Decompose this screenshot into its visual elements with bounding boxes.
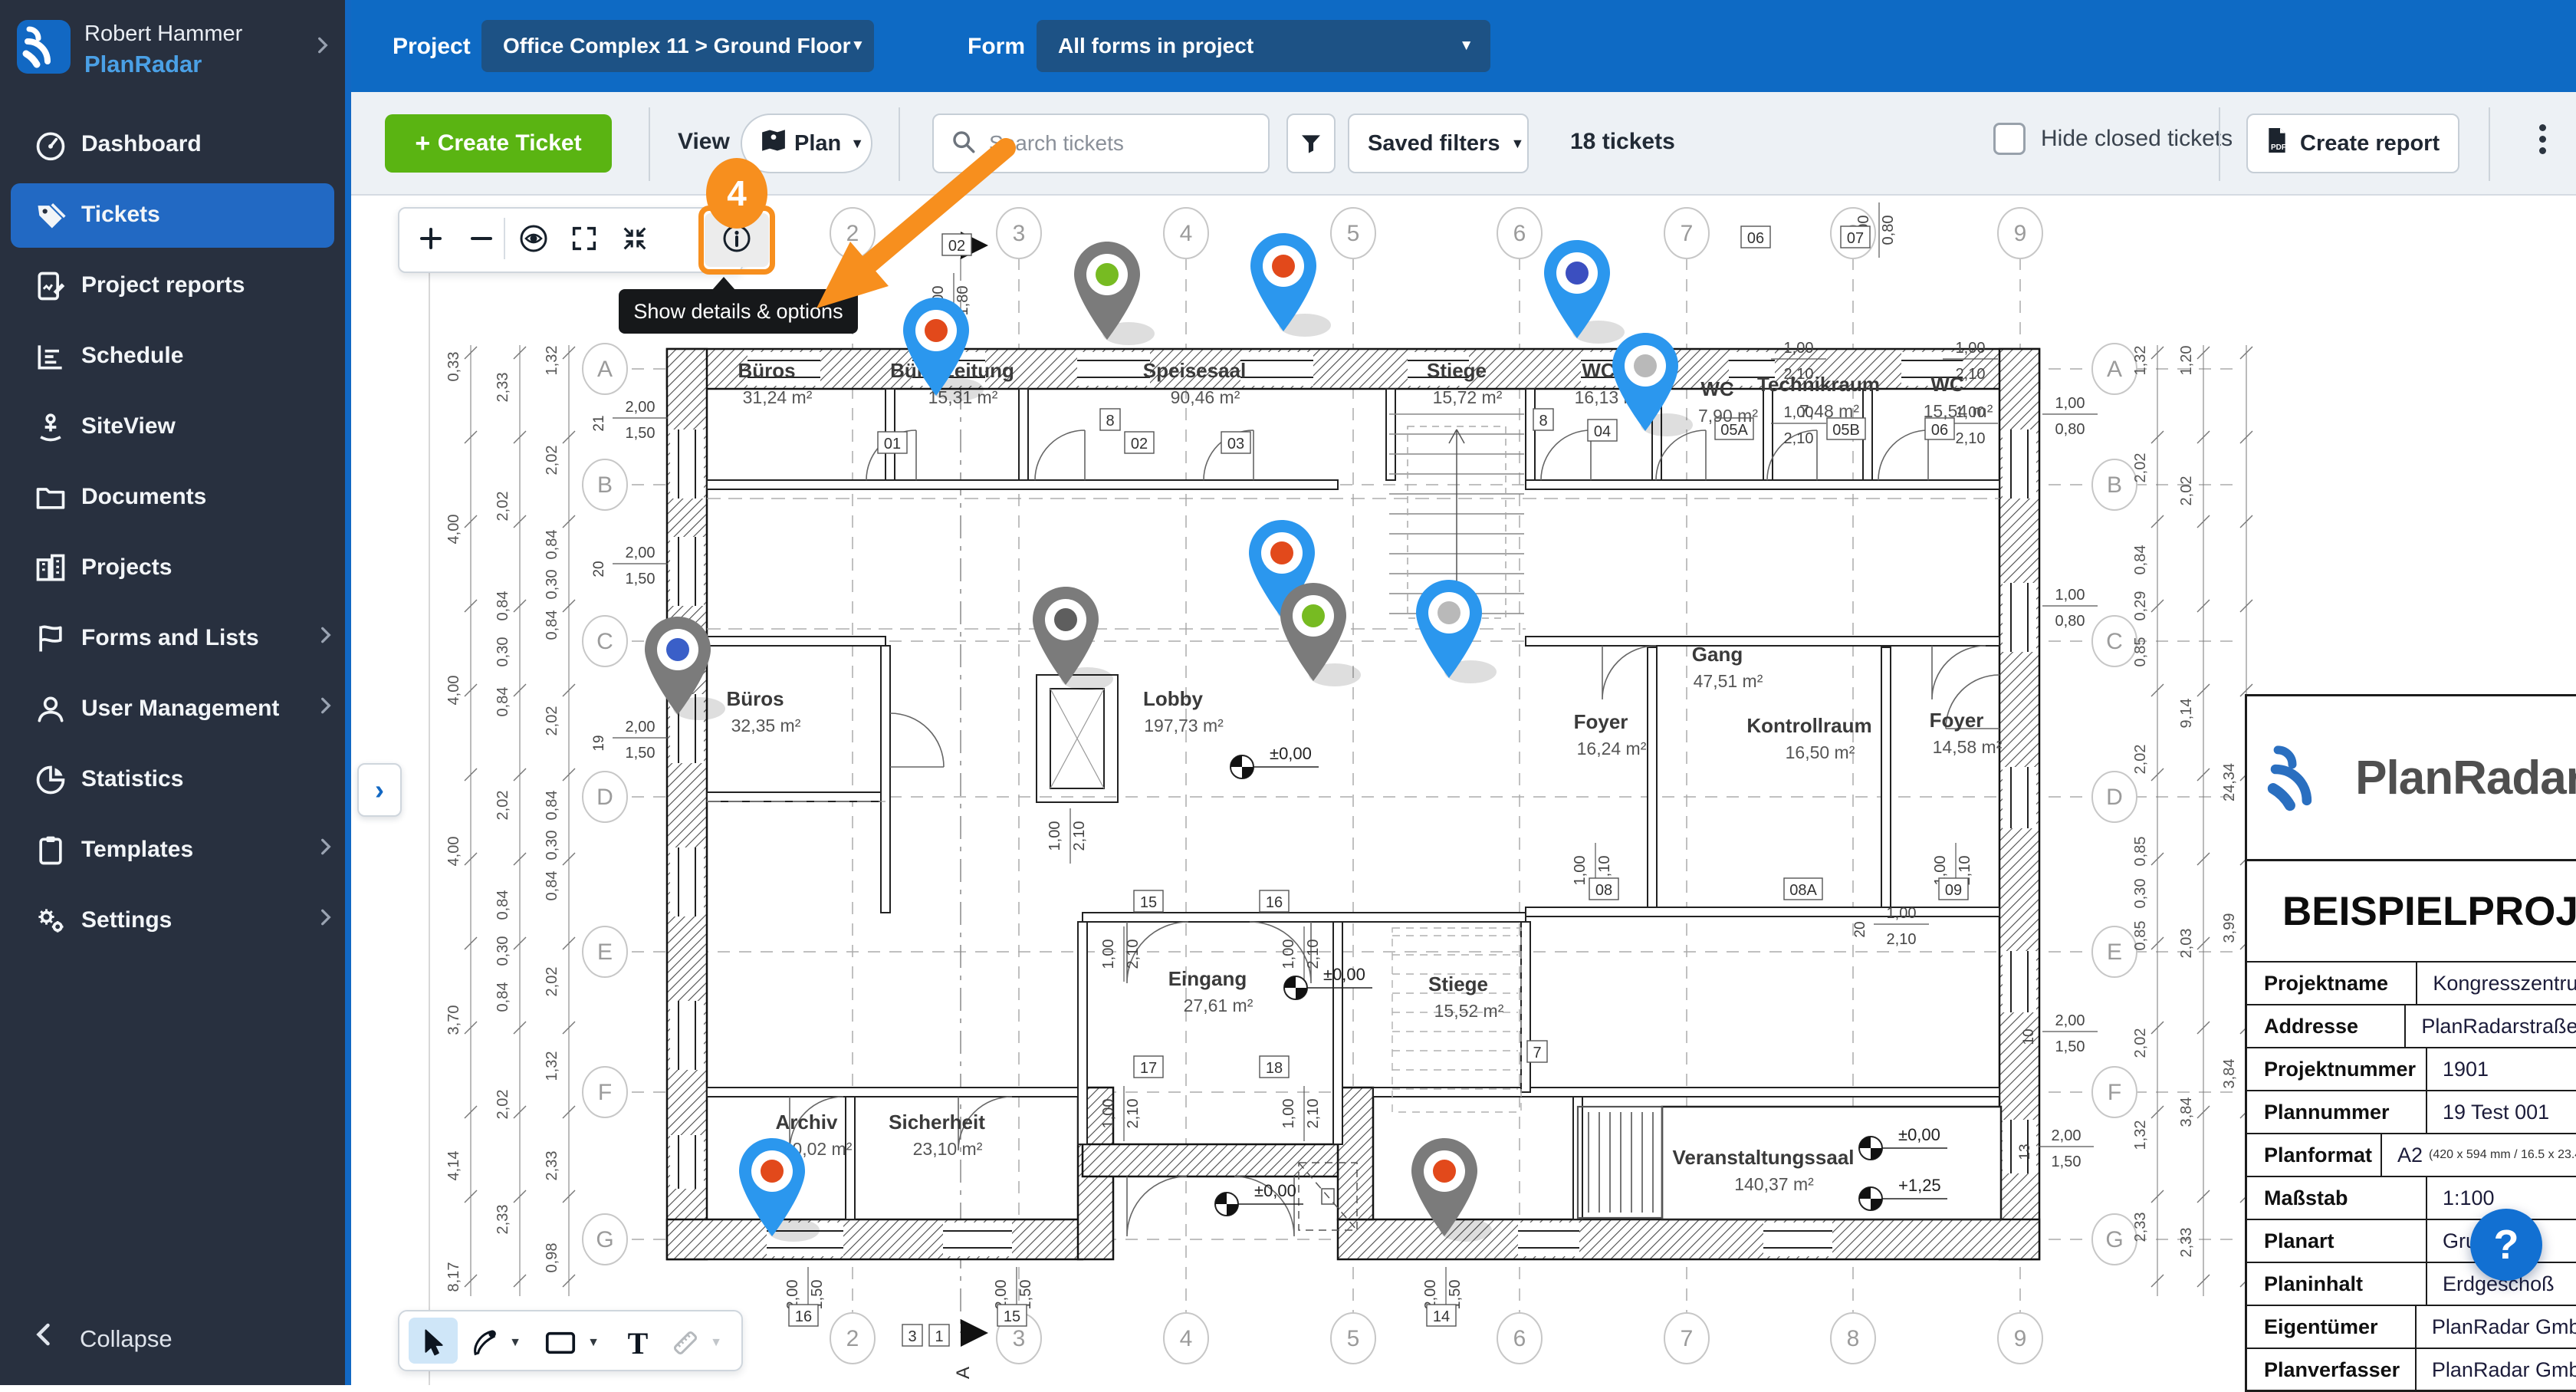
svg-text:±0,00: ±0,00: [1270, 744, 1312, 763]
search-input[interactable]: [987, 130, 1244, 156]
help-button[interactable]: ?: [2470, 1209, 2542, 1281]
svg-text:1,50: 1,50: [2052, 1153, 2081, 1170]
svg-text:±0,00: ±0,00: [1254, 1181, 1296, 1200]
svg-text:0,30: 0,30: [495, 936, 511, 966]
dimension-pair: 1,000,80: [2042, 587, 2098, 630]
svg-text:2,33: 2,33: [544, 1151, 560, 1181]
plan-viewport: 2233445566778899AABBCCDDEEFFGG: [351, 196, 2576, 1385]
sidebar-item-settings[interactable]: Settings: [0, 886, 345, 956]
svg-text:0,80: 0,80: [2055, 613, 2085, 630]
title-block-row: PlanverfasserPlanRadar GmbH: [2247, 1348, 2576, 1390]
door-tag: 06: [1741, 226, 1770, 248]
svg-text:±0,00: ±0,00: [1323, 965, 1365, 984]
svg-text:1,32: 1,32: [2132, 346, 2149, 376]
svg-text:15,72 m²: 15,72 m²: [1433, 387, 1503, 407]
svg-text:2,10: 2,10: [1125, 1099, 1142, 1129]
svg-text:B: B: [597, 472, 613, 498]
svg-text:7: 7: [1681, 1326, 1694, 1351]
svg-text:7,90 m²: 7,90 m²: [1698, 406, 1758, 426]
ticket-pin[interactable]: [645, 617, 725, 720]
svg-text:01: 01: [884, 436, 901, 452]
svg-text:1,32: 1,32: [2132, 1121, 2149, 1150]
saved-filters-label: Saved filters: [1368, 131, 1500, 156]
caret-down-icon: ▼: [1459, 38, 1474, 54]
svg-text:0,30: 0,30: [544, 831, 560, 861]
svg-text:Veranstaltungssaal: Veranstaltungssaal: [1673, 1146, 1855, 1169]
view-label: View: [678, 129, 730, 155]
svg-text:3: 3: [1013, 1326, 1026, 1351]
svg-text:1,20: 1,20: [2178, 346, 2195, 376]
map-icon: [761, 127, 787, 160]
form-label: Form: [968, 34, 1025, 60]
svg-text:15: 15: [1004, 1308, 1020, 1325]
svg-text:0,80: 0,80: [1880, 216, 1897, 245]
svg-text:1,00: 1,00: [1100, 940, 1117, 969]
title-block-brand: PlanRadar: [2355, 751, 2576, 805]
svg-text:2,00: 2,00: [626, 719, 655, 735]
door-tag: 7: [1527, 1041, 1547, 1062]
dimension-pair: 1,000,80: [2042, 395, 2098, 438]
zoom-out-button[interactable]: [458, 209, 505, 268]
svg-text:03: 03: [1227, 436, 1244, 452]
room-label: Technikraum7,48 m²: [1757, 373, 1880, 421]
svg-text:2,00: 2,00: [626, 545, 655, 561]
svg-text:06: 06: [1747, 230, 1764, 247]
svg-text:08A: 08A: [1789, 882, 1817, 899]
svg-text:3: 3: [908, 1328, 916, 1345]
svg-text:47,51 m²: 47,51 m²: [1694, 671, 1763, 691]
door-tag: 08A: [1784, 878, 1822, 900]
svg-text:0,30: 0,30: [495, 637, 511, 667]
sidebar-item-tickets[interactable]: Tickets: [0, 180, 345, 251]
user-company: PlanRadar: [84, 51, 202, 78]
door-tag: 14: [1427, 1305, 1456, 1326]
dimension-pair: 1,002,10: [1100, 926, 1142, 982]
svg-text:2,02: 2,02: [495, 791, 511, 821]
svg-text:9: 9: [2014, 221, 2027, 246]
svg-text:C: C: [2106, 629, 2123, 654]
svg-text:WC: WC: [1582, 359, 1615, 382]
dimension-strip: 1,202,029,142,033,842,33: [2178, 345, 2210, 1296]
sidebar-item-forms-and-lists[interactable]: Forms and Lists: [0, 604, 345, 674]
svg-text:0,85: 0,85: [2132, 637, 2149, 667]
fit-to-screen-button[interactable]: [611, 209, 659, 268]
svg-text:Technikraum: Technikraum: [1757, 373, 1880, 396]
dimension-pair: 2,001,5021: [591, 399, 668, 442]
svg-text:4,14: 4,14: [445, 1151, 462, 1181]
room-label: Sicherheit23,10 m²: [889, 1111, 985, 1159]
svg-text:2,02: 2,02: [544, 706, 560, 736]
svg-text:0,84: 0,84: [495, 591, 511, 621]
pen-tool[interactable]: [465, 1313, 504, 1373]
svg-text:14: 14: [1433, 1308, 1450, 1325]
svg-text:0,29: 0,29: [2132, 591, 2149, 621]
title-block-row: PlanformatA2(420 x 594 mm / 16.5 x 23.4 …: [2247, 1133, 2576, 1176]
sidebar-item-schedule[interactable]: Schedule: [0, 321, 345, 392]
svg-text:2,00: 2,00: [2055, 1012, 2085, 1029]
svg-text:0,30: 0,30: [544, 570, 560, 600]
tooltip: Show details & options: [619, 289, 858, 334]
svg-text:5: 5: [1347, 1326, 1360, 1351]
svg-text:1,50: 1,50: [626, 745, 655, 762]
svg-text:1,00: 1,00: [2055, 395, 2085, 412]
svg-text:7: 7: [1681, 221, 1694, 246]
level-marker: ±0,00: [1284, 965, 1372, 999]
svg-text:20: 20: [1852, 921, 1868, 937]
shape-tool-caret[interactable]: ▼: [580, 1313, 606, 1373]
svg-text:1,50: 1,50: [2055, 1038, 2085, 1055]
svg-text:0,30: 0,30: [2132, 879, 2149, 909]
door-tag: 1: [929, 1325, 949, 1346]
svg-text:140,37 m²: 140,37 m²: [1734, 1174, 1814, 1194]
room-label: Foyer14,58 m²: [1930, 709, 2003, 757]
sidebar-item-siteview[interactable]: SiteView: [0, 392, 345, 462]
expand-panel-button[interactable]: ›: [357, 763, 402, 817]
door-tag: 17: [1134, 1056, 1163, 1078]
door-tag: 18: [1260, 1056, 1289, 1078]
title-block-row: AddressePlanRadarstraße 1: [2247, 1004, 2576, 1047]
svg-text:3: 3: [1013, 221, 1026, 246]
create-ticket-button[interactable]: + Create Ticket: [385, 114, 612, 173]
level-marker: ±0,00: [1215, 1181, 1303, 1216]
title-block-row: Plannummer19 Test 001: [2247, 1090, 2576, 1133]
svg-text:2,33: 2,33: [495, 1205, 511, 1235]
svg-text:Büros: Büros: [726, 687, 784, 710]
sidebar: Robert Hammer PlanRadar DashboardTickets…: [0, 0, 345, 1385]
svg-text:2,33: 2,33: [2132, 1213, 2149, 1242]
door-tag: 3: [902, 1325, 922, 1346]
svg-text:15: 15: [1140, 894, 1157, 911]
svg-text:0,98: 0,98: [544, 1243, 560, 1273]
door-tag: 08: [1589, 878, 1618, 900]
ticket-pin[interactable]: [1544, 240, 1625, 344]
svg-text:WC: WC: [1930, 373, 1964, 396]
svg-text:E: E: [2107, 940, 2122, 965]
svg-text:17: 17: [1140, 1060, 1157, 1077]
svg-text:16: 16: [1266, 894, 1283, 911]
door-tag: 15: [997, 1305, 1027, 1326]
title-block-row: EigentümerPlanRadar GmbH: [2247, 1305, 2576, 1348]
sidebar-item-statistics[interactable]: Statistics: [0, 745, 345, 815]
dashboard-icon: [34, 128, 67, 162]
ticket-pin[interactable]: [1416, 580, 1497, 683]
search-icon: [951, 129, 977, 159]
svg-text:0,85: 0,85: [2132, 921, 2149, 951]
door-tag: 04: [1588, 420, 1617, 441]
collapse-label: Collapse: [80, 1325, 172, 1353]
svg-text:G: G: [2105, 1227, 2123, 1252]
door-tag: 05B: [1827, 418, 1865, 439]
divider: [899, 107, 900, 181]
svg-text:Stiege: Stiege: [1428, 972, 1488, 995]
title-block-project-title: BEISPIELPROJEKT: [2247, 859, 2576, 961]
sidebar-item-documents[interactable]: Documents: [0, 462, 345, 533]
person-icon: [34, 693, 67, 726]
ticket-count: 18 tickets: [1570, 129, 1675, 155]
ticket-pin[interactable]: [1250, 233, 1331, 337]
sidebar-item-user-management[interactable]: User Management: [0, 674, 345, 745]
fullscreen-button[interactable]: [560, 209, 608, 268]
svg-text:2,00: 2,00: [2052, 1127, 2081, 1144]
svg-text:2,02: 2,02: [2132, 1028, 2149, 1058]
ticket-pin[interactable]: [1074, 242, 1155, 345]
tickets-toolbar: + Create Ticket View Plan ▼ Saved filter…: [351, 92, 2576, 196]
chevron-right-icon: [313, 35, 333, 59]
plan-zoom-toolbar: 4 Show details & options: [398, 207, 743, 273]
top-bar: Project Office Complex 11 > Ground Floor…: [351, 0, 2576, 92]
svg-text:2,10: 2,10: [1305, 940, 1322, 969]
select-tool[interactable]: [410, 1313, 458, 1373]
sidebar-collapse[interactable]: Collapse: [0, 1313, 345, 1367]
svg-text:19: 19: [591, 735, 607, 751]
sidebar-item-projects[interactable]: Projects: [0, 533, 345, 604]
svg-text:2: 2: [846, 221, 859, 246]
form-selector-value: All forms in project: [1037, 34, 1253, 58]
svg-text:32,35 m²: 32,35 m²: [731, 716, 801, 735]
caret-down-icon: ▼: [1510, 136, 1524, 152]
funnel-icon: [1299, 131, 1323, 156]
floor-plan: 2233445566778899AABBCCDDEEFFGG: [351, 196, 2576, 1385]
svg-text:20: 20: [591, 561, 607, 577]
svg-text:0,84: 0,84: [495, 982, 511, 1012]
svg-text:+1,25: +1,25: [1898, 1176, 1941, 1195]
dimension-strip: 2,332,020,840,300,842,020,840,300,842,02…: [495, 345, 526, 1296]
svg-text:E: E: [597, 940, 613, 965]
svg-text:3,99: 3,99: [2221, 913, 2238, 943]
svg-text:Speisesaal: Speisesaal: [1143, 359, 1246, 382]
gears-icon: [34, 904, 67, 938]
svg-text:4: 4: [1180, 1326, 1193, 1351]
svg-text:2,33: 2,33: [2178, 1228, 2195, 1258]
form-selector[interactable]: All forms in project ▼: [1037, 20, 1490, 72]
svg-text:4,00: 4,00: [445, 837, 462, 867]
saved-filters-selector[interactable]: Saved filters ▼: [1348, 114, 1529, 173]
svg-text:23,10 m²: 23,10 m²: [913, 1139, 983, 1159]
project-label: Project: [393, 34, 471, 60]
section-label: A: [953, 1367, 974, 1379]
svg-text:3,84: 3,84: [2178, 1097, 2195, 1127]
create-report-label: Create report: [2300, 131, 2440, 156]
svg-text:197,73 m²: 197,73 m²: [1144, 716, 1224, 735]
buildings-icon: [34, 551, 67, 585]
svg-text:14,58 m²: 14,58 m²: [1933, 737, 2003, 757]
plus-icon: +: [415, 129, 437, 158]
svg-text:21: 21: [591, 415, 607, 431]
dimension-pair: 2,001,5020: [591, 545, 668, 587]
svg-text:±0,00: ±0,00: [1898, 1125, 1940, 1144]
svg-text:0,84: 0,84: [544, 610, 560, 640]
svg-text:Stiege: Stiege: [1427, 359, 1487, 382]
divider: [2219, 107, 2220, 181]
door-tag: 01: [878, 432, 907, 453]
more-options-kebab[interactable]: [2527, 120, 2558, 166]
pen-tool-caret[interactable]: ▼: [502, 1313, 528, 1373]
svg-text:Kontrollraum: Kontrollraum: [1746, 714, 1871, 737]
room-label: Gang47,51 m²: [1692, 643, 1763, 691]
visibility-eye-button[interactable]: [510, 209, 557, 268]
svg-text:9: 9: [2014, 1326, 2027, 1351]
svg-text:2,10: 2,10: [1071, 821, 1088, 851]
svg-text:1,00: 1,00: [1046, 821, 1063, 851]
svg-text:WC: WC: [1700, 377, 1734, 400]
svg-text:2,00: 2,00: [626, 399, 655, 416]
room-label: Lobby197,73 m²: [1143, 687, 1224, 735]
dimension-pair: 2,001,5019: [591, 719, 668, 762]
svg-text:2,10: 2,10: [1305, 1099, 1322, 1129]
svg-text:15,54 m²: 15,54 m²: [1924, 401, 1993, 421]
project-selector-value: Office Complex 11 > Ground Floor: [481, 34, 851, 58]
svg-text:4,00: 4,00: [445, 676, 462, 706]
svg-text:1,50: 1,50: [626, 425, 655, 442]
svg-text:2,02: 2,02: [2132, 745, 2149, 775]
svg-text:08: 08: [1595, 882, 1612, 899]
svg-text:2,02: 2,02: [544, 446, 560, 476]
folder-icon: [34, 481, 67, 515]
title-block-row: Maßstab1:100: [2247, 1176, 2576, 1219]
sidebar-item-templates[interactable]: Templates: [0, 815, 345, 886]
hide-closed-label: Hide closed tickets: [2041, 126, 2233, 152]
shape-tool[interactable]: [540, 1313, 580, 1373]
svg-text:F: F: [2108, 1080, 2121, 1105]
caret-down-icon: ▼: [851, 38, 866, 54]
svg-text:02: 02: [1131, 436, 1148, 452]
svg-text:G: G: [596, 1227, 613, 1252]
sidebar-item-project-reports[interactable]: Project reports: [0, 251, 345, 321]
chevron-right-icon: [316, 837, 336, 861]
drawing-toolbar: ▼ ▼ T ▼: [398, 1310, 743, 1371]
svg-text:1,50: 1,50: [626, 571, 655, 587]
svg-text:04: 04: [1594, 423, 1611, 440]
svg-text:8: 8: [1539, 413, 1547, 429]
project-selector[interactable]: Office Complex 11 > Ground Floor ▼: [481, 20, 874, 72]
door-tag: 09: [1939, 878, 1968, 900]
planradar-logo: [2259, 735, 2343, 820]
svg-text:0,84: 0,84: [2132, 545, 2149, 575]
svg-text:Sicherheit: Sicherheit: [889, 1111, 985, 1134]
svg-text:Eingang: Eingang: [1168, 967, 1247, 990]
sidebar-item-dashboard[interactable]: Dashboard: [0, 110, 345, 180]
svg-text:1,00: 1,00: [1280, 940, 1297, 969]
svg-text:0,80: 0,80: [2055, 421, 2085, 438]
door-tag: 16: [1260, 890, 1289, 912]
dimension-strip: 1,322,020,840,300,842,020,840,300,842,02…: [544, 345, 575, 1296]
svg-text:16,50 m²: 16,50 m²: [1786, 742, 1855, 762]
divider: [504, 218, 505, 259]
svg-text:0,85: 0,85: [2132, 837, 2149, 867]
svg-text:1,00: 1,00: [1280, 1099, 1297, 1129]
door-tag: 15: [1134, 890, 1163, 912]
checkbox[interactable]: [1993, 123, 2026, 155]
svg-text:2,02: 2,02: [2178, 476, 2195, 506]
clipboard-icon: [34, 834, 67, 867]
measure-tool-caret[interactable]: ▼: [703, 1313, 729, 1373]
dimension-pair: 1,002,10: [1280, 1086, 1322, 1141]
door-tag: 8: [1100, 409, 1120, 430]
zoom-in-button[interactable]: [407, 209, 455, 268]
dimension-strip: 0,334,004,004,003,704,148,17: [445, 345, 477, 1296]
hide-closed-toggle[interactable]: Hide closed tickets: [1993, 123, 2233, 155]
svg-text:2,02: 2,02: [544, 967, 560, 997]
svg-text:2,10: 2,10: [1125, 940, 1142, 969]
title-block-row: ProjektnameKongresszentrum: [2247, 961, 2576, 1004]
divider: [649, 107, 650, 181]
svg-text:1,32: 1,32: [544, 346, 560, 376]
filter-button[interactable]: [1286, 114, 1336, 173]
svg-text:2,02: 2,02: [495, 492, 511, 522]
svg-text:F: F: [598, 1080, 612, 1105]
svg-text:3,84: 3,84: [2221, 1059, 2238, 1089]
svg-text:1,00: 1,00: [1572, 856, 1589, 886]
account-switcher[interactable]: Robert Hammer PlanRadar: [0, 0, 345, 100]
svg-text:1,00: 1,00: [1887, 905, 1917, 922]
room-label: Eingang27,61 m²: [1168, 967, 1253, 1015]
svg-text:B: B: [2107, 472, 2122, 498]
tooltip-arrow: [712, 277, 735, 290]
schedule-icon: [34, 340, 67, 374]
room-label: Stiege15,52 m²: [1428, 972, 1504, 1021]
svg-text:Büros: Büros: [738, 359, 795, 382]
svg-text:0,84: 0,84: [544, 791, 560, 821]
svg-text:2,02: 2,02: [495, 1090, 511, 1120]
title-block-row: Projektnummer1901: [2247, 1047, 2576, 1090]
svg-text:07: 07: [1847, 230, 1864, 247]
door-tag: 06: [1925, 418, 1954, 439]
svg-text:9,14: 9,14: [2178, 699, 2195, 729]
door-tag: 02: [942, 234, 971, 255]
svg-text:7: 7: [1533, 1045, 1541, 1061]
svg-text:4,00: 4,00: [445, 515, 462, 545]
svg-text:2,10: 2,10: [1956, 430, 1986, 447]
svg-text:1,00: 1,00: [1956, 340, 1986, 357]
door-tag: 02: [1125, 432, 1154, 453]
svg-text:0,84: 0,84: [495, 890, 511, 920]
chevron-right-icon: [316, 625, 336, 649]
svg-text:0,84: 0,84: [544, 871, 560, 901]
svg-text:2: 2: [846, 1326, 859, 1351]
measure-tool[interactable]: [666, 1313, 705, 1373]
svg-text:1,00: 1,00: [2055, 587, 2085, 604]
svg-text:18: 18: [1266, 1060, 1283, 1077]
view-selector[interactable]: Plan ▼: [741, 114, 872, 173]
caret-down-icon: ▼: [850, 136, 864, 152]
pdf-icon: PDF: [2265, 127, 2289, 160]
svg-text:27,61 m²: 27,61 m²: [1184, 995, 1253, 1015]
sidebar-accent-divider: [345, 0, 351, 1385]
text-tool[interactable]: T: [619, 1313, 657, 1373]
room-label: Foyer16,24 m²: [1574, 710, 1647, 759]
svg-text:13: 13: [2017, 1144, 2033, 1160]
dimension-pair: 1,002,10: [1046, 808, 1088, 864]
svg-text:6: 6: [1513, 221, 1526, 246]
ticket-pin[interactable]: [1280, 583, 1361, 686]
svg-text:8,17: 8,17: [445, 1262, 462, 1292]
svg-text:1,00: 1,00: [1100, 1099, 1117, 1129]
svg-text:1,00: 1,00: [1784, 340, 1814, 357]
svg-text:0,33: 0,33: [445, 352, 462, 382]
floor-plan-drawing: [429, 207, 2317, 1385]
svg-text:16: 16: [795, 1308, 812, 1325]
svg-text:Foyer: Foyer: [1574, 710, 1628, 733]
svg-text:Gang: Gang: [1692, 643, 1743, 666]
svg-text:D: D: [2106, 785, 2123, 810]
svg-text:5: 5: [1347, 221, 1360, 246]
door-tag: 07: [1841, 226, 1870, 248]
room-label: Büros32,35 m²: [726, 687, 800, 735]
svg-text:16,24 m²: 16,24 m²: [1577, 739, 1647, 759]
svg-text:24,34: 24,34: [2221, 763, 2238, 801]
svg-text:7,48 m²: 7,48 m²: [1799, 401, 1859, 421]
create-report-button[interactable]: PDF Create report: [2246, 114, 2459, 173]
